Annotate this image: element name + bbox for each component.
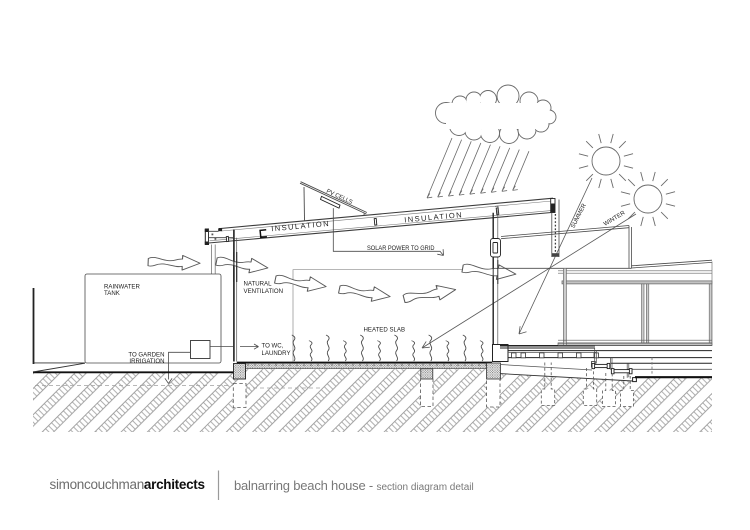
svg-text:TO WC,: TO WC,: [262, 342, 284, 349]
svg-text:WINTER: WINTER: [603, 210, 627, 228]
svg-text:NATURAL: NATURAL: [244, 281, 273, 288]
svg-text:HEATED SLAB: HEATED SLAB: [364, 327, 406, 334]
svg-text:TANK: TANK: [104, 290, 120, 297]
svg-text:balnarring beach house - secti: balnarring beach house - section diagram…: [234, 478, 474, 493]
svg-text:simoncouchmanarchitects: simoncouchmanarchitects: [50, 477, 205, 492]
svg-text:SUMMER: SUMMER: [570, 202, 588, 229]
svg-text:SOLAR POWER TO GRID: SOLAR POWER TO GRID: [367, 245, 435, 252]
svg-text:IRRIGATION: IRRIGATION: [129, 358, 164, 365]
svg-text:INSULATION: INSULATION: [404, 210, 464, 224]
svg-text:LAUNDRY: LAUNDRY: [262, 350, 291, 357]
svg-text:VENTILATION: VENTILATION: [244, 288, 284, 295]
